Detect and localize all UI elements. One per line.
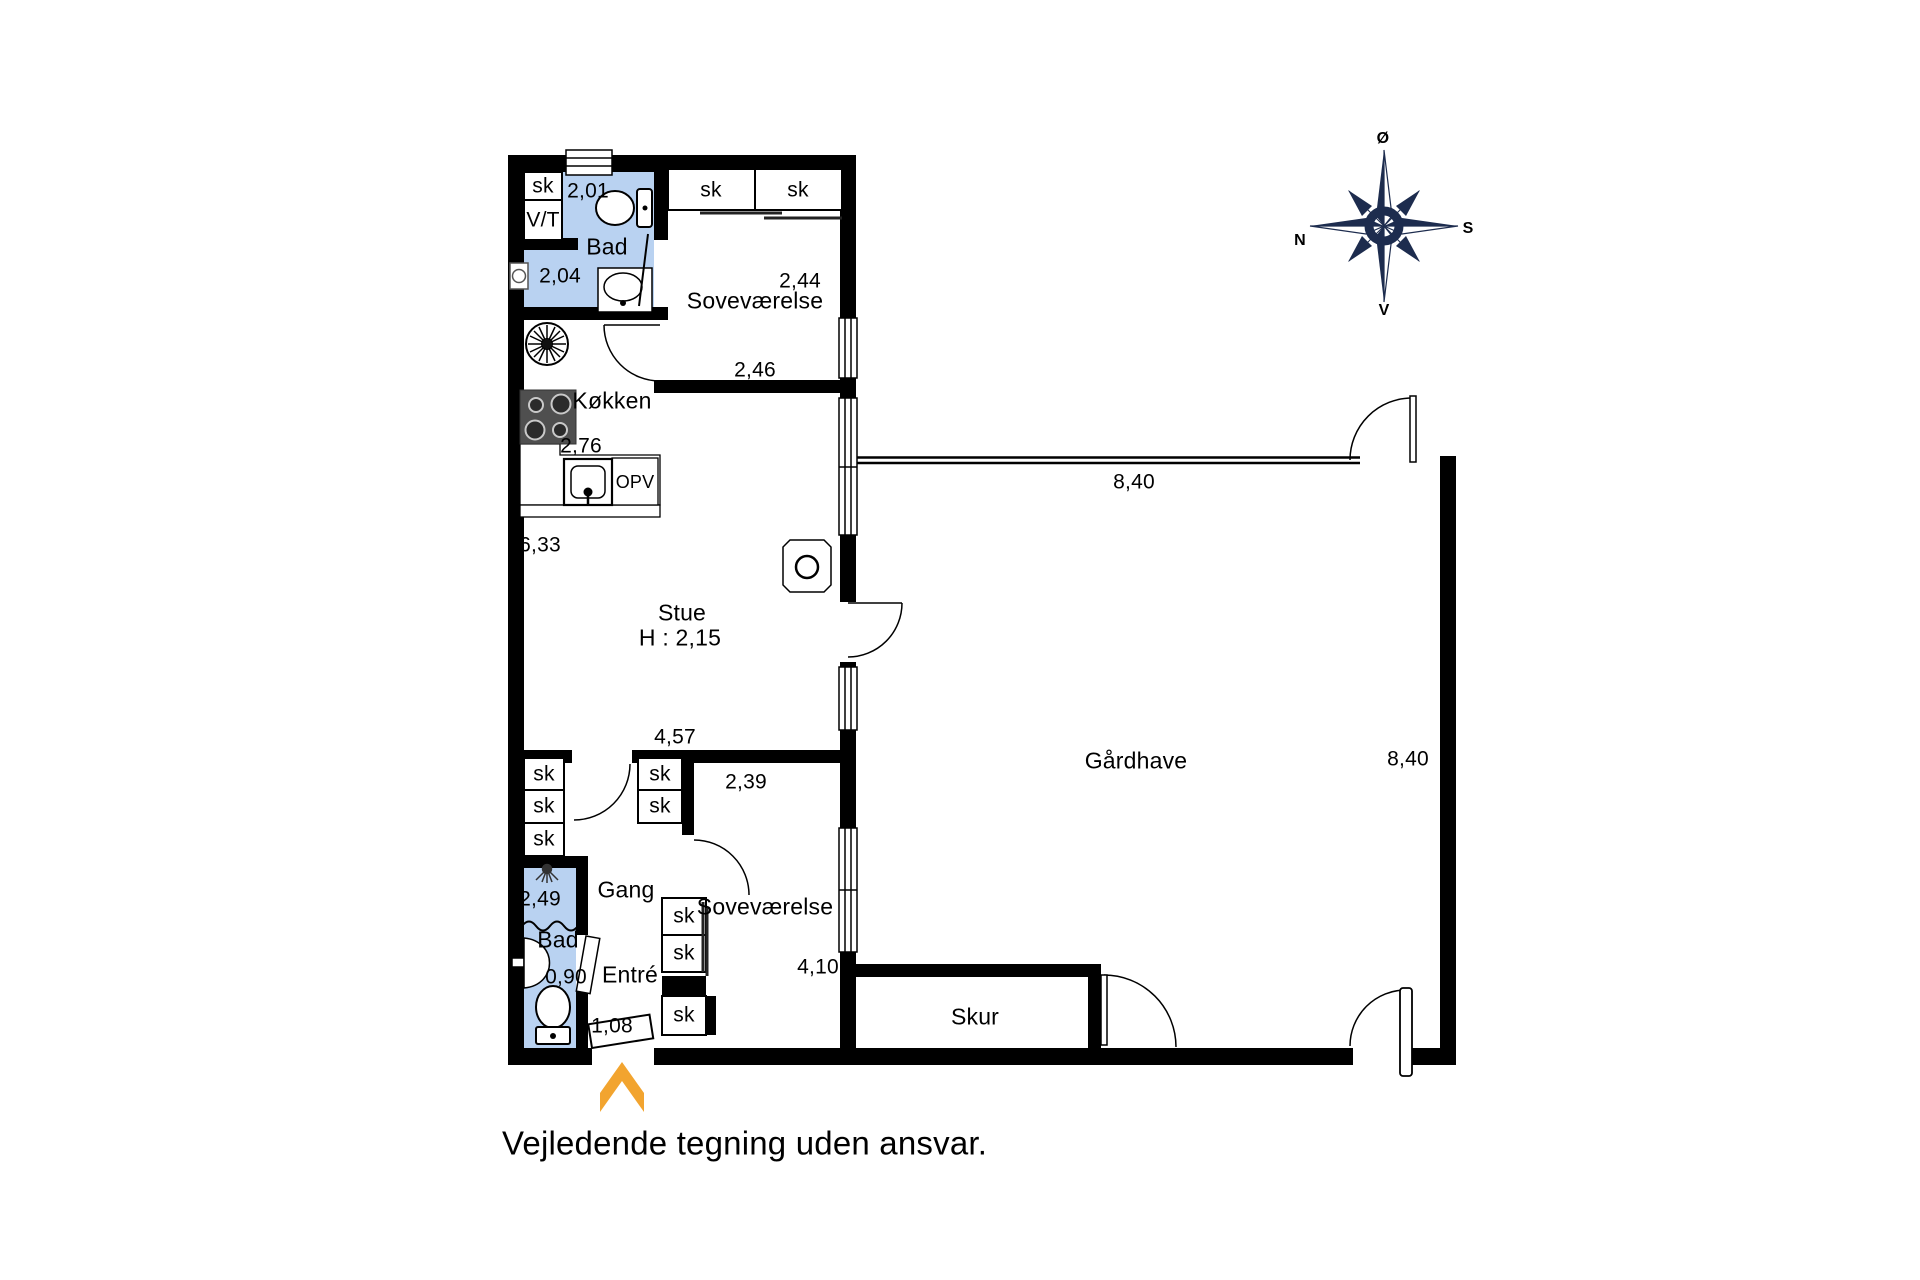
living-length-dim: 6,33 [519,535,561,556]
extractor-fan-icon [526,323,568,365]
hall-closet-mid-1-label: sk [649,764,670,785]
bathroom-top-closet-label: sk [532,176,553,197]
compass-west-label: V [1379,303,1390,319]
kitchen-name: Køkken [572,390,651,413]
compass-east-label: Ø [1377,131,1390,147]
dishwasher-label: OPV [616,473,655,491]
courtyard-top-dim: 8,40 [1113,472,1155,493]
living-width-dim: 4,57 [654,727,696,748]
bedroom-top-name: Soveværelse [687,290,823,313]
kitchen-width-dim: 2,76 [560,436,602,457]
bathroom-top-width-dim: 2,01 [567,181,609,202]
bathroom-bottom-width-dim: 2,49 [519,889,561,910]
courtyard-gate-top [1350,396,1416,462]
bathroom-top-name: Bad [586,236,628,259]
washer-icon [510,263,528,289]
fireplace [783,540,831,592]
kitchen-sink [564,459,612,505]
bedroom-top-bottom-dim: 2,46 [734,360,776,381]
bathroom-bottom-sink-dim: 0,90 [545,967,587,988]
shed-door [1101,975,1176,1047]
bedroom-bottom-closet-3-label: sk [673,1005,694,1026]
compass-south-label: S [1463,221,1474,237]
entry-door-dim: 1,08 [591,1016,633,1037]
entry-name: Entré [602,964,658,987]
hall-name: Gang [597,879,654,902]
fence [856,458,1360,464]
bathroom-top-washer-label: V/T [526,210,559,231]
courtyard-gate-bottom [1350,988,1412,1076]
bedroom-bottom-width-dim: 2,39 [725,772,767,793]
floor-plan-drawing [0,0,1920,1280]
bedroom-bottom-closet-1-label: sk [673,906,694,927]
living-room-name: Stue [658,602,706,625]
floor-plan-page: sk V/T 2,01 Bad 2,04 sk sk 2,44 Sovevære… [0,0,1920,1280]
bedroom-top-closet-right-label: sk [787,180,808,201]
bedroom-bottom-closet-2-label: sk [673,943,694,964]
living-ceiling-height: H : 2,15 [639,627,721,650]
shed-name: Skur [951,1006,999,1029]
bathroom-bottom-name: Bad [537,929,579,952]
sliding-door-rails [700,213,842,976]
hall-closet-3-label: sk [533,829,554,850]
hall-closet-1-label: sk [533,764,554,785]
hall-closet-2-label: sk [533,796,554,817]
disclaimer-note: Vejledende tegning uden ansvar. [502,1127,987,1160]
compass-rose [1310,150,1458,302]
compass-north-label: N [1294,233,1306,249]
bedroom-top-closet-left-label: sk [700,180,721,201]
entrance-arrow-icon [600,1062,644,1112]
toilet-bottom [536,986,570,1044]
hall-closet-mid-2-label: sk [649,796,670,817]
courtyard-right-dim: 8,40 [1387,749,1429,770]
courtyard-name: Gårdhave [1085,750,1188,773]
bedroom-bottom-length-dim: 4,10 [797,957,839,978]
bedroom-bottom-name: Soveværelse [697,896,833,919]
bathroom-top-depth-dim: 2,04 [539,266,581,287]
